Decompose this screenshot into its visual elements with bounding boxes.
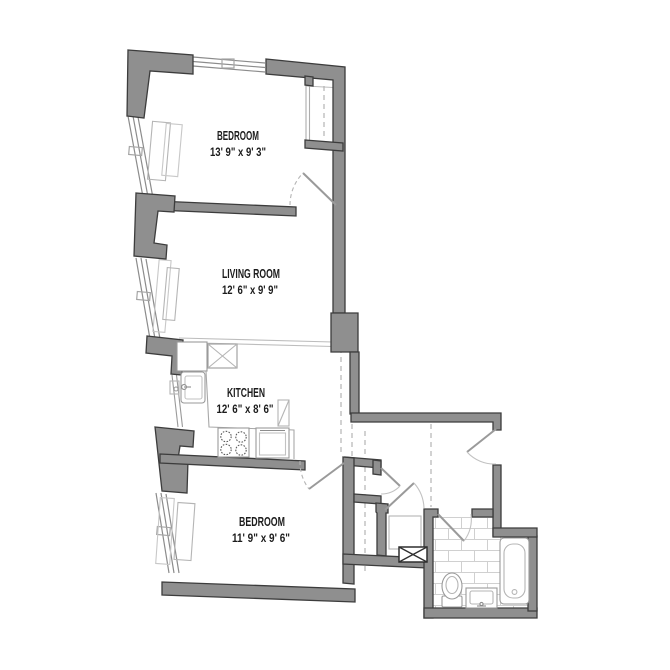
wall-tub-nook-top [493,528,537,537]
wall-bedroom2-bottom [162,582,355,602]
kitchen-sink-icon [181,372,205,403]
window-living-left [136,258,160,339]
wall-left-mid-block [134,193,175,259]
living-room-dims: 12' 6" x 9' 9" [222,283,278,297]
floor-plan-page: BEDROOM 13' 9" x 9' 3" LIVING ROOM 12' 6… [0,0,670,670]
bedroom1-dims: 13' 9" x 9' 3" [210,145,266,159]
shaft-icon [399,547,427,562]
door-entry [467,429,496,464]
wall-top-left-corner [127,50,193,118]
dishwasher-icon [256,428,289,458]
kitchen-label: KITCHEN [227,385,265,400]
small-fixture-icon [278,400,289,426]
room-labels: BEDROOM 13' 9" x 9' 3" LIVING ROOM 12' 6… [210,128,290,545]
closet-front-lines [306,80,310,142]
wall-closet-cap-right [373,460,381,475]
wall-pilaster-right [331,313,358,352]
bedroom1-label: BEDROOM [217,128,259,143]
wall-bedroom1-living [157,201,296,216]
wall-below-pilaster [350,352,359,414]
living-room-label: LIVING ROOM [222,266,280,281]
floor-plan: BEDROOM 13' 9" x 9' 3" LIVING ROOM 12' 6… [0,0,670,670]
bedroom2-dims: 11' 9" x 9' 6" [232,531,290,545]
refrigerator-icon [177,342,207,371]
cabinet-x-icon [208,344,237,368]
radiator-bedroom1 [148,121,183,180]
wall-right-below-entry [493,465,501,536]
door-utility-closet [385,483,424,510]
utility-shelf-outline [389,516,421,549]
wall-entry-top [351,413,501,430]
vanity-sink-icon [466,588,497,608]
wall-closet1-cap [305,76,313,86]
range-icon [218,428,249,457]
window-top [193,57,265,72]
wall-closet2-left [376,503,388,556]
bathtub-icon [500,538,529,604]
toilet-icon [442,573,462,607]
door-bedroom2 [300,461,344,489]
doors [290,173,496,541]
closet-elements [389,516,427,562]
wall-bathroom-bottom [424,608,537,618]
door-hall-closet [381,468,400,494]
bedroom2-label: BEDROOM [239,514,285,529]
door-bedroom1 [290,173,336,205]
wall-bathroom-top-right [472,509,493,517]
kitchen-dims: 12' 6" x 8' 6" [217,402,274,416]
